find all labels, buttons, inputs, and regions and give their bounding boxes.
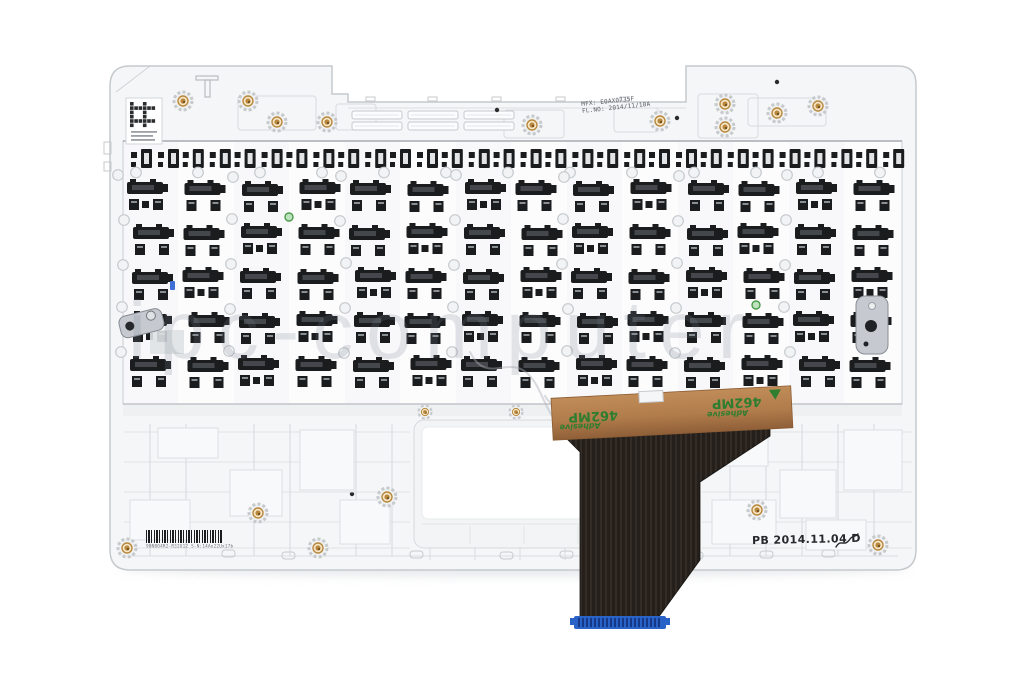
hinge-bracket-right <box>856 296 888 354</box>
product-photo-laptop-topcase: 462MPAdhesive462MPAdhesive ipc-computer … <box>0 0 1024 680</box>
ribbon-connector <box>570 616 670 629</box>
barcode-image <box>146 530 222 543</box>
topcase-illustration: 462MPAdhesive462MPAdhesive <box>0 0 1024 680</box>
date-stamp: PB 2014.11.04 D <box>752 532 861 547</box>
qr-sticker <box>126 98 162 144</box>
barcode-caption: 90NB04R2-R32U12 S-N:14An22Ux17b <box>146 544 233 549</box>
barcode-sticker: 90NB04R2-R32U12 S-N:14An22Ux17b <box>146 530 267 551</box>
tape-print-text: 462MP <box>711 393 761 411</box>
